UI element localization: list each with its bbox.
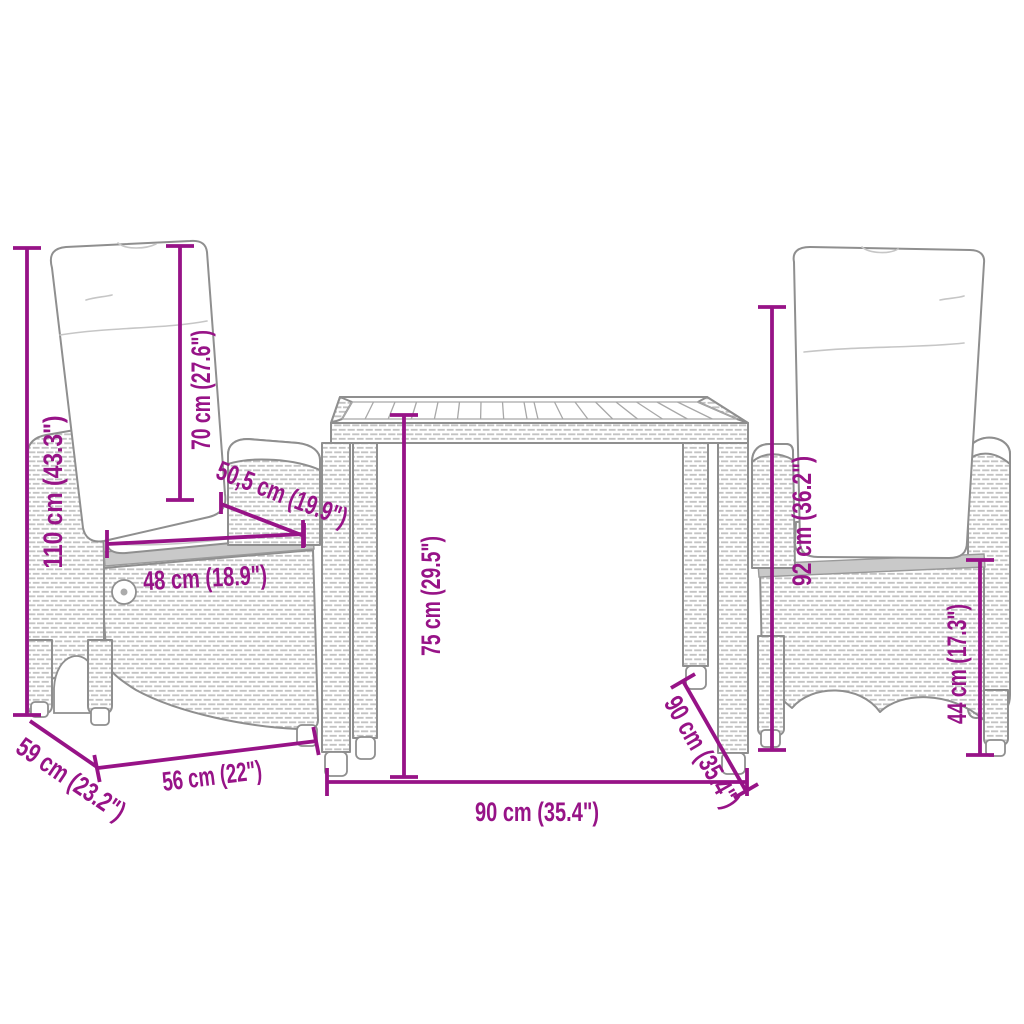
left-chair-front-left-leg xyxy=(88,640,112,714)
diagram-canvas: 110 cm (43.3") 70 cm (27.6") 50,5 cm (19… xyxy=(0,0,1024,1024)
left-chair-recline-knob-center xyxy=(121,589,128,596)
right-chair-right-leg xyxy=(984,690,1008,746)
dim-left-chair-depth-label: 59 cm (23.2") xyxy=(11,732,131,827)
table-foot-back-left xyxy=(356,737,375,759)
dim-right-chair-seat-height-label: 44 cm (17.3") xyxy=(942,604,972,724)
left-chair-front-left-foot xyxy=(91,708,109,725)
table-leg-front-right xyxy=(718,443,748,753)
dim-table-height-label: 75 cm (29.5") xyxy=(416,536,446,656)
table-leg-front-left xyxy=(322,443,350,752)
dim-left-chair-depth: 59 cm (23.2") xyxy=(11,721,131,826)
dim-table-width-label: 90 cm (35.4") xyxy=(475,797,599,827)
right-chair-back-cushion xyxy=(794,247,985,558)
dim-left-chair-backrest-height-label: 70 cm (27.6") xyxy=(186,330,216,450)
dim-right-chair-back-height-label: 92 cm (36.2") xyxy=(787,456,817,586)
dim-table-height: 75 cm (29.5") xyxy=(390,415,446,777)
table-leg-back-left xyxy=(353,443,377,738)
table-leg-back-right xyxy=(683,443,708,666)
table-apron xyxy=(331,423,748,443)
dim-left-chair-width-label: 56 cm (22") xyxy=(161,755,264,797)
dim-left-chair-width: 56 cm (22") xyxy=(94,727,318,797)
dim-left-chair-total-height-label: 110 cm (43.3") xyxy=(38,416,68,569)
product-dimension-diagram: 110 cm (43.3") 70 cm (27.6") 50,5 cm (19… xyxy=(0,0,1024,1024)
